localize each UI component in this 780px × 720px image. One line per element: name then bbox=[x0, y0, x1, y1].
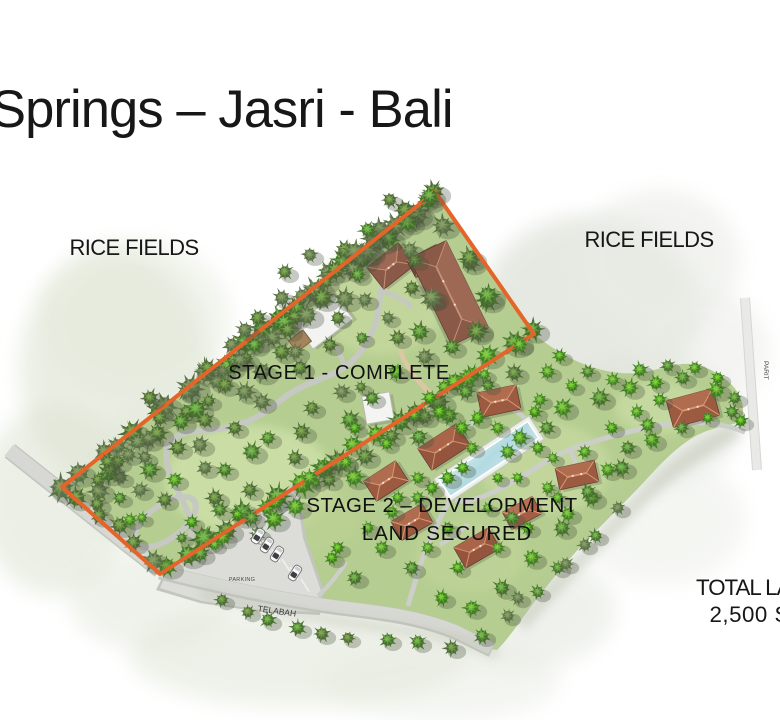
svg-text:RICE FIELDS: RICE FIELDS bbox=[584, 227, 713, 252]
svg-text:TOTAL LAND: TOTAL LAND bbox=[696, 575, 780, 600]
svg-text:Springs – Jasri - Bali: Springs – Jasri - Bali bbox=[0, 80, 453, 139]
svg-text:LAND SECURED: LAND SECURED bbox=[362, 522, 532, 545]
svg-text:STAGE 1 - COMPLETE: STAGE 1 - COMPLETE bbox=[228, 362, 450, 384]
svg-text:STAGE 2 – DEVELOPMENT: STAGE 2 – DEVELOPMENT bbox=[306, 494, 577, 517]
svg-text:PARKING: PARKING bbox=[229, 577, 255, 583]
svg-text:PARIT: PARIT bbox=[762, 361, 769, 380]
svg-text:RICE FIELDS: RICE FIELDS bbox=[69, 235, 198, 260]
svg-text:2,500 SQM: 2,500 SQM bbox=[710, 602, 780, 627]
